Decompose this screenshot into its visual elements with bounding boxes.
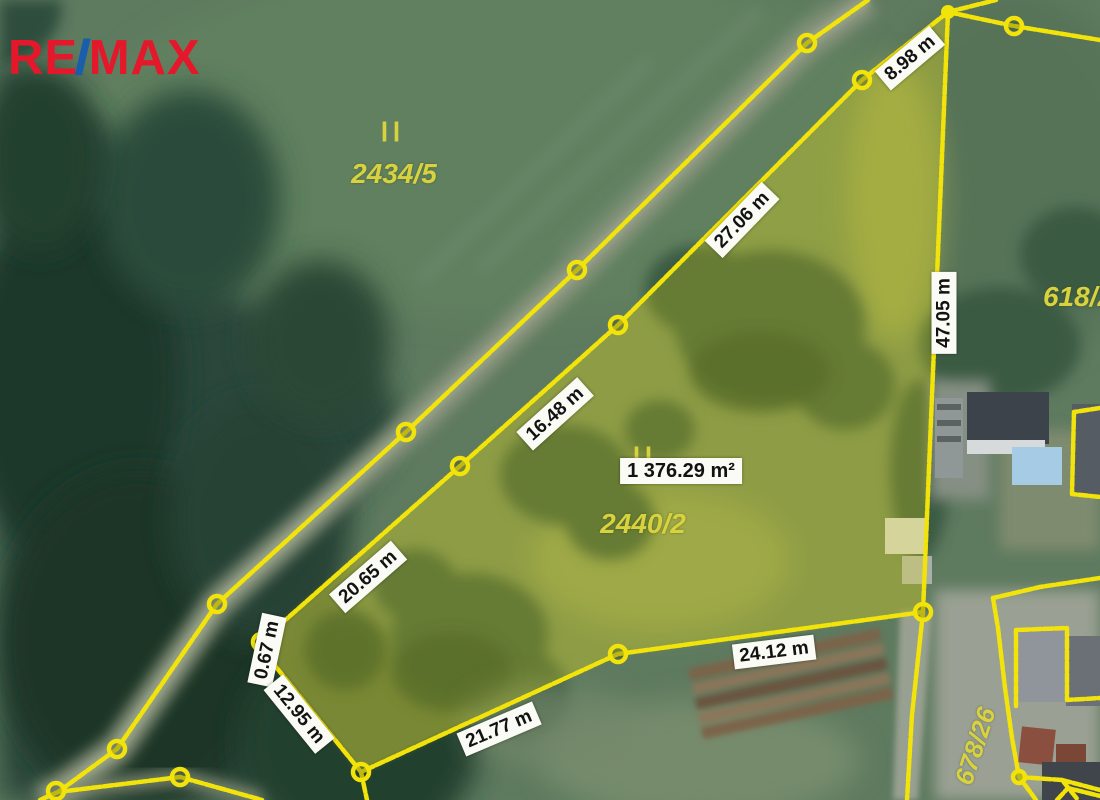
remax-slash-icon: / (74, 34, 92, 83)
remax-watermark: RE/MAX (8, 34, 201, 83)
vertex-marker (915, 604, 931, 620)
vertex-marker (610, 317, 626, 333)
vertex-marker (452, 458, 468, 474)
vertex-marker (209, 596, 225, 612)
vertex-marker (172, 769, 188, 785)
aerial-map-view: RE/MAX II II 2434/5 2440/2 618/2 678/26 … (0, 0, 1100, 800)
boundary-right-zigzag (993, 578, 1100, 800)
vertex-marker (799, 35, 815, 51)
vertex-marker (1006, 18, 1022, 34)
parcel-number-2434-5: 2434/5 (351, 160, 437, 188)
vertex-marker (610, 646, 626, 662)
junction-vertex (941, 5, 955, 19)
boundary-branch-bottom-left (58, 777, 262, 800)
vertex-marker (48, 783, 64, 799)
area-label: 1 376.29 m² (620, 458, 742, 484)
boundary-building-bracket (1072, 408, 1100, 497)
vertex-marker (569, 262, 585, 278)
parcel-number-2440-2: 2440/2 (600, 510, 686, 538)
remax-max: MAX (89, 31, 201, 85)
vertex-marker (854, 72, 870, 88)
parcel-highlight-fill (259, 12, 948, 772)
remax-re: RE (8, 31, 78, 85)
measurement-label-47-05: 47.05 m (932, 272, 957, 354)
vertex-marker (109, 741, 125, 757)
boundary-continuation-right-bottom (907, 612, 923, 800)
vertex-marker (398, 424, 414, 440)
land-use-symbol-meadow: II (381, 119, 405, 148)
boundary-building-outline (1016, 628, 1100, 706)
parcel-number-618-2: 618/2 (1043, 283, 1100, 311)
boundary-top-right-a (948, 0, 996, 12)
vertex-marker (1013, 771, 1025, 783)
vertex-marker (353, 764, 369, 780)
